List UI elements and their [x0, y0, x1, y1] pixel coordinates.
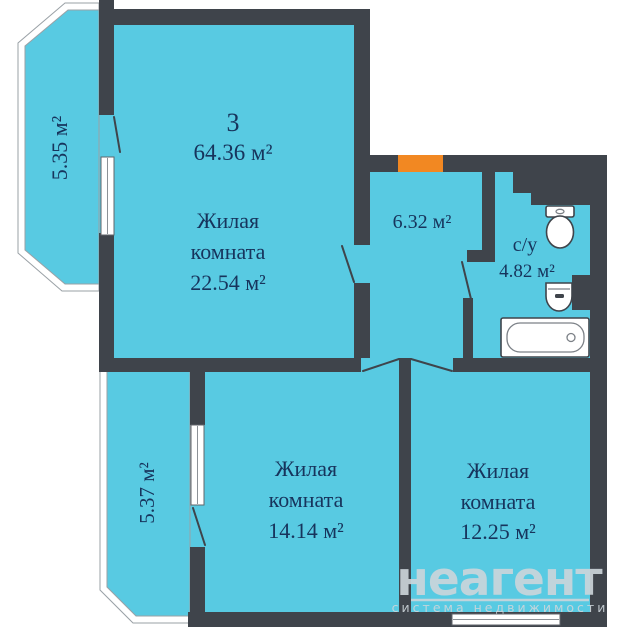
bathroom-label: с/у [513, 234, 537, 256]
watermark-tagline: система недвижимости [392, 600, 609, 615]
balcony-bottom-area: 5.37 м² [135, 462, 159, 524]
wall-main-left-lower [99, 233, 114, 361]
living-main-label-1: Жилая [197, 208, 259, 233]
summary-rooms-count: 3 [227, 108, 240, 137]
wall-bathroom-step1 [513, 172, 531, 193]
hall-area: 6.32 м² [393, 211, 452, 233]
bathtub-icon [501, 318, 589, 357]
wall-balcony2-upper [190, 361, 205, 425]
window-balcony2 [191, 425, 204, 505]
living-mid-area: 14.14 м² [268, 518, 344, 543]
wall-bathroom-stub [467, 250, 495, 262]
window-bottom [452, 614, 560, 625]
wall-top [113, 9, 370, 25]
bathroom-area: 4.82 м² [499, 261, 555, 282]
entrance-door [398, 155, 443, 172]
wall-main-right-lower [354, 283, 370, 358]
living-right-label-1: Жилая [467, 458, 529, 483]
watermark-brand: неагент [396, 552, 603, 607]
living-main-area: 22.54 м² [190, 270, 266, 295]
floor-plan-svg: 3 64.36 м² Жилая комната 22.54 м² 6.32 м… [0, 0, 636, 636]
wall-mid-left [99, 358, 361, 372]
wall-bathroom-left-upper [482, 172, 495, 252]
living-right-label-2: комната [461, 489, 536, 514]
wall-balcony2-lower [190, 547, 205, 617]
wall-main-right-upper [354, 9, 370, 245]
living-mid-label-2: комната [269, 487, 344, 512]
sink-icon [546, 283, 572, 311]
wall-left-top-stub [99, 0, 114, 115]
watermark: неагент система недвижимости [392, 552, 609, 615]
toilet-icon [546, 206, 574, 248]
living-main-label-2: комната [191, 239, 266, 264]
summary-total-area: 64.36 м² [194, 140, 273, 165]
wall-bathroom-left-lower [463, 298, 473, 360]
living-mid-label-1: Жилая [275, 456, 337, 481]
balcony-top-area: 5.35 м² [47, 115, 72, 180]
wall-mid-right [453, 358, 605, 372]
wall-sink-stub [572, 275, 590, 310]
room-living-main-area [99, 9, 370, 372]
living-right-area: 12.25 м² [460, 519, 536, 544]
window-main-left [101, 157, 114, 235]
floor-plan-image: 3 64.36 м² Жилая комната 22.54 м² 6.32 м… [0, 0, 636, 636]
